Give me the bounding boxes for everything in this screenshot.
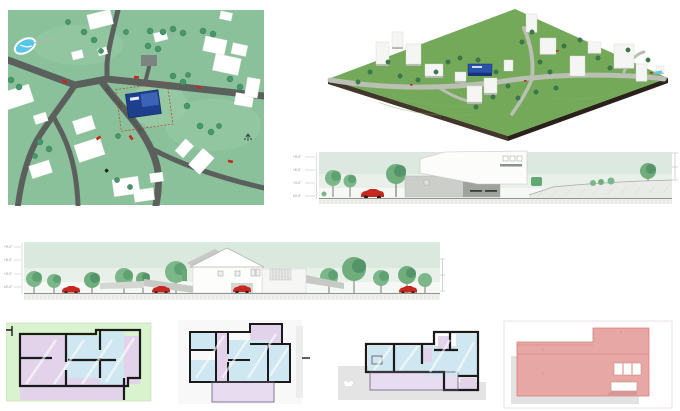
floor-plan-2-panel	[176, 320, 312, 410]
svg-text:+9'-0": +9'-0"	[4, 245, 12, 249]
svg-text:+3'-0": +3'-0"	[4, 272, 12, 276]
roof-plan-panel	[503, 320, 677, 411]
level-markers-left: +9'-0" +6'-0" +3'-0" ±0'-0"	[293, 153, 317, 199]
ground-hatch	[319, 199, 672, 204]
level-markers-left: +9'-0" +6'-0" +3'-0" ±0'-0"	[4, 243, 22, 294]
hedge	[531, 177, 542, 186]
svg-text:+9'-0": +9'-0"	[293, 155, 301, 159]
svg-text:+6'-0": +6'-0"	[4, 258, 12, 262]
ground-hatch	[24, 294, 440, 300]
svg-text:±0'-0": ±0'-0"	[4, 285, 12, 289]
hedge	[182, 269, 187, 281]
svg-text:+6'-0": +6'-0"	[293, 168, 301, 172]
sheet-shadow	[296, 326, 303, 398]
elevation-left-panel: +9'-0" +6'-0" +3'-0" ±0'-0"	[4, 239, 446, 313]
floor-plan-3-panel	[338, 320, 492, 411]
dimension-line-right	[440, 259, 445, 291]
elevation-right-panel: +9'-0" +6'-0" +3'-0" ±0'-0"	[293, 149, 680, 210]
parking-lot	[141, 55, 157, 66]
svg-text:+3'-0": +3'-0"	[293, 181, 301, 185]
site-model-3d-panel	[318, 2, 680, 150]
dimension-line-right	[672, 153, 678, 180]
model-pool	[654, 70, 662, 74]
site-plan-panel: BUILDING LOCATION	[8, 10, 264, 206]
floor-plan-1-panel	[6, 320, 156, 408]
svg-text:±0'-0": ±0'-0"	[293, 194, 301, 198]
model-subject-building	[468, 64, 492, 76]
